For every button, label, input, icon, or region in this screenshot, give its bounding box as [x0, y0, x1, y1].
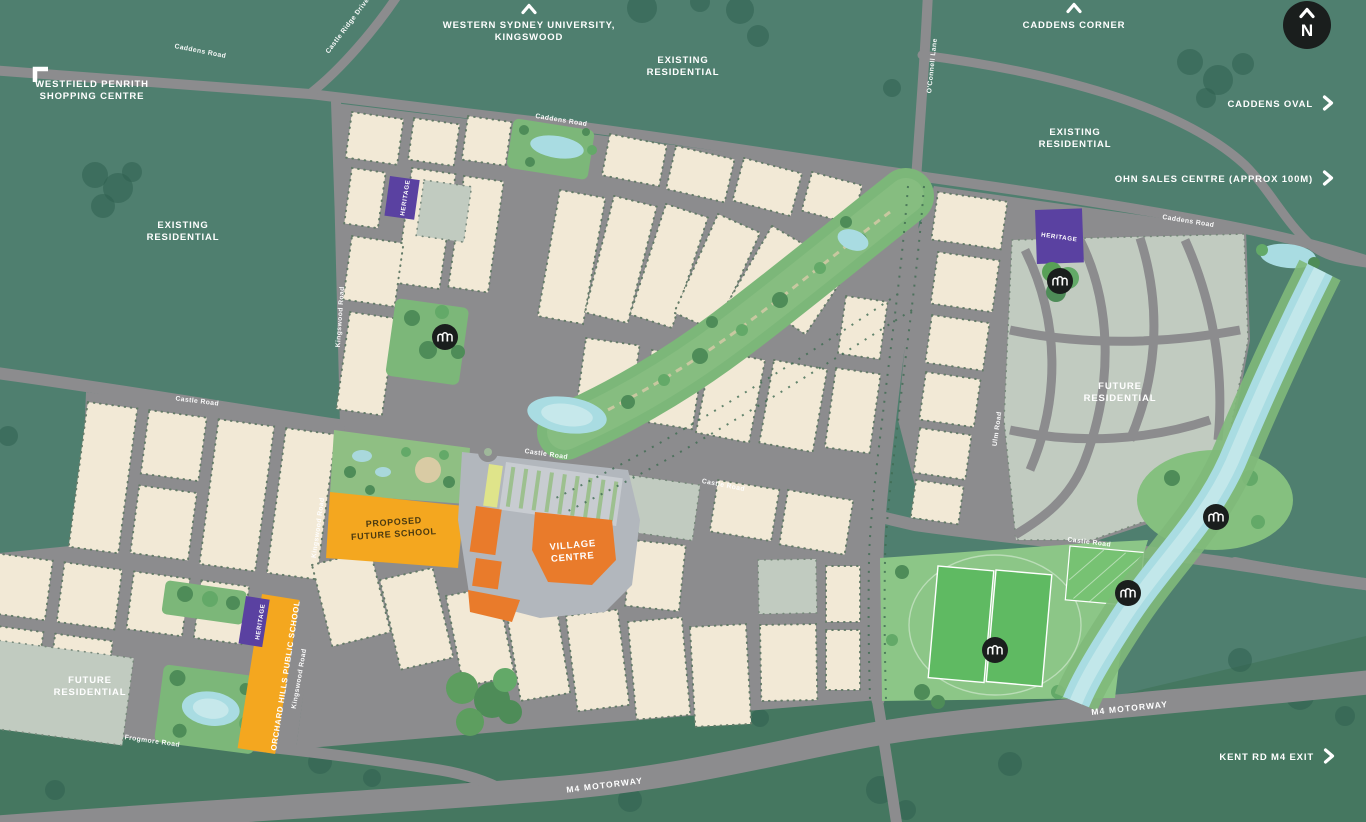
wsu-label-line1[interactable]: WESTERN SYDNEY UNIVERSITY, [443, 20, 616, 31]
playground-icon [432, 324, 458, 350]
existing-residential-left-line2: RESIDENTIAL [147, 232, 220, 243]
playground-icon [1115, 580, 1141, 606]
playground-icon [1203, 504, 1229, 530]
caddens-oval-label[interactable]: CADDENS OVAL [1227, 99, 1313, 110]
existing-residential-top-line1: EXISTING [657, 55, 708, 66]
ohn-sales-centre-label[interactable]: OHN SALES CENTRE (APPROX 100M) [1115, 174, 1313, 185]
future-residential-east-line2: RESIDENTIAL [1084, 393, 1157, 404]
playground-icon [982, 637, 1008, 663]
kent-rd-m4-exit-label[interactable]: KENT RD M4 EXIT [1219, 752, 1314, 763]
village-building [472, 558, 502, 589]
heritage-site-east: HERITAGE [1035, 208, 1084, 264]
westfield-label-line2[interactable]: SHOPPING CENTRE [40, 91, 145, 102]
sports-field [986, 570, 1052, 686]
sports-field [928, 566, 994, 682]
masterplan-map: PROPOSED FUTURE SCHOOL VILLAGE CENTRE [0, 0, 1366, 822]
future-residential-sw-line2: RESIDENTIAL [54, 687, 127, 698]
north-letter: N [1301, 21, 1313, 40]
existing-residential-right-line1: EXISTING [1049, 127, 1100, 138]
heritage-site-west: HERITAGE [384, 176, 419, 220]
north-compass: N [1283, 1, 1331, 49]
map-canvas: PROPOSED FUTURE SCHOOL VILLAGE CENTRE [0, 0, 1366, 822]
existing-residential-top-line2: RESIDENTIAL [647, 67, 720, 78]
future-residential-sw-line1: FUTURE [68, 675, 112, 686]
existing-residential-left-line1: EXISTING [157, 220, 208, 231]
caddens-corner-label[interactable]: CADDENS CORNER [1023, 20, 1126, 31]
playground-icon [1047, 268, 1073, 294]
wsu-label-line2[interactable]: KINGSWOOD [495, 32, 563, 43]
existing-residential-right-line2: RESIDENTIAL [1039, 139, 1112, 150]
westfield-label-line1[interactable]: WESTFIELD PENRITH [35, 79, 149, 90]
future-residential-east-line1: FUTURE [1098, 381, 1142, 392]
